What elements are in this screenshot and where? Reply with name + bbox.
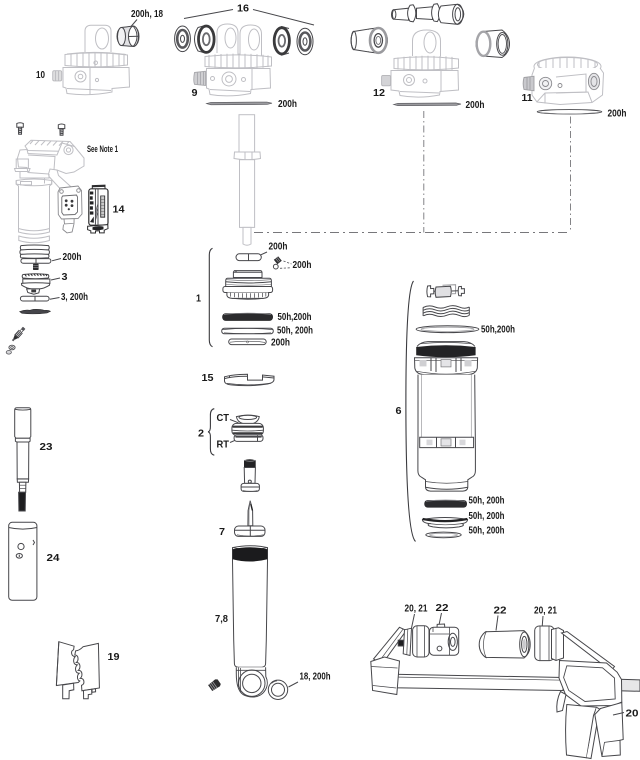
svg-text:200h: 200h	[63, 251, 82, 263]
svg-text:RT: RT	[217, 439, 230, 451]
svg-text:6: 6	[396, 405, 402, 417]
svg-text:See Note 1: See Note 1	[87, 144, 118, 154]
svg-text:50h, 200h: 50h, 200h	[469, 495, 505, 507]
svg-text:20, 21: 20, 21	[405, 603, 428, 615]
svg-text:18, 200h: 18, 200h	[300, 671, 331, 683]
svg-text:12: 12	[373, 87, 385, 99]
svg-text:7: 7	[219, 526, 225, 538]
svg-text:11: 11	[522, 92, 533, 104]
svg-text:16: 16	[237, 3, 249, 15]
svg-text:3: 3	[62, 271, 68, 283]
svg-text:50h,200h: 50h,200h	[481, 324, 515, 336]
svg-text:19: 19	[108, 651, 120, 663]
svg-text:50h, 200h: 50h, 200h	[277, 325, 313, 337]
svg-text:20, 21: 20, 21	[534, 605, 557, 617]
svg-text:20: 20	[626, 708, 639, 720]
svg-text:200h: 200h	[466, 99, 485, 111]
svg-text:9: 9	[192, 87, 198, 99]
svg-text:50h, 200h: 50h, 200h	[469, 510, 505, 522]
svg-text:24: 24	[47, 552, 60, 564]
svg-text:10: 10	[36, 69, 45, 81]
svg-text:1: 1	[196, 293, 201, 305]
svg-text:15: 15	[202, 372, 214, 384]
svg-text:22: 22	[436, 602, 449, 614]
svg-text:50h, 200h: 50h, 200h	[469, 525, 505, 537]
svg-text:14: 14	[113, 204, 125, 216]
svg-text:3, 200h: 3, 200h	[61, 291, 88, 303]
svg-text:2: 2	[198, 428, 204, 440]
svg-text:50h,200h: 50h,200h	[278, 311, 312, 323]
svg-text:200h: 200h	[608, 108, 627, 120]
svg-text:23: 23	[40, 441, 53, 453]
svg-text:200h: 200h	[271, 337, 290, 349]
svg-text:200h: 200h	[293, 259, 312, 271]
svg-text:7,8: 7,8	[215, 613, 228, 625]
svg-text:200h: 200h	[269, 241, 288, 253]
svg-text:22: 22	[494, 605, 507, 617]
svg-text:CT: CT	[217, 412, 230, 424]
svg-text:200h: 200h	[278, 98, 297, 110]
svg-text:200h, 18: 200h, 18	[131, 8, 163, 20]
